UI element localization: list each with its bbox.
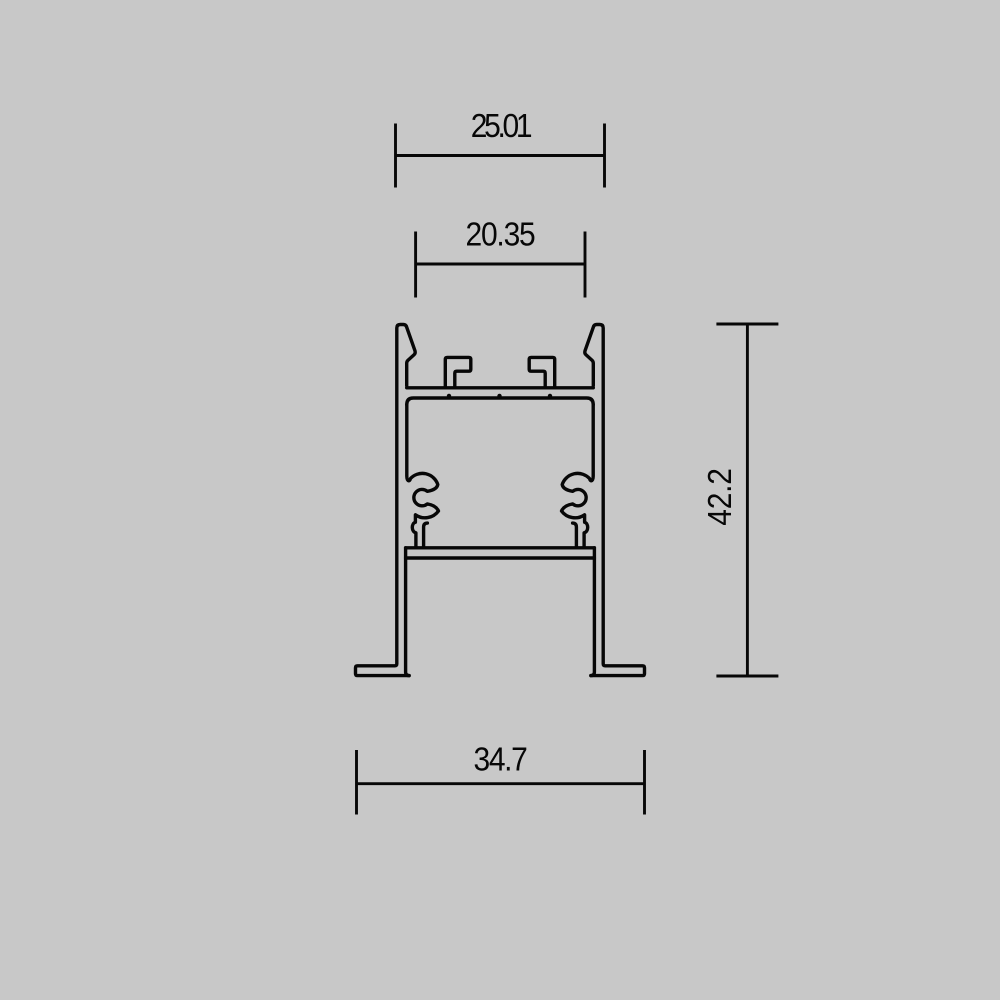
svg-text:20.35: 20.35 — [465, 215, 535, 253]
svg-text:42.2: 42.2 — [701, 468, 739, 526]
svg-text:25.01: 25.01 — [471, 107, 531, 145]
svg-text:34.7: 34.7 — [474, 740, 527, 778]
